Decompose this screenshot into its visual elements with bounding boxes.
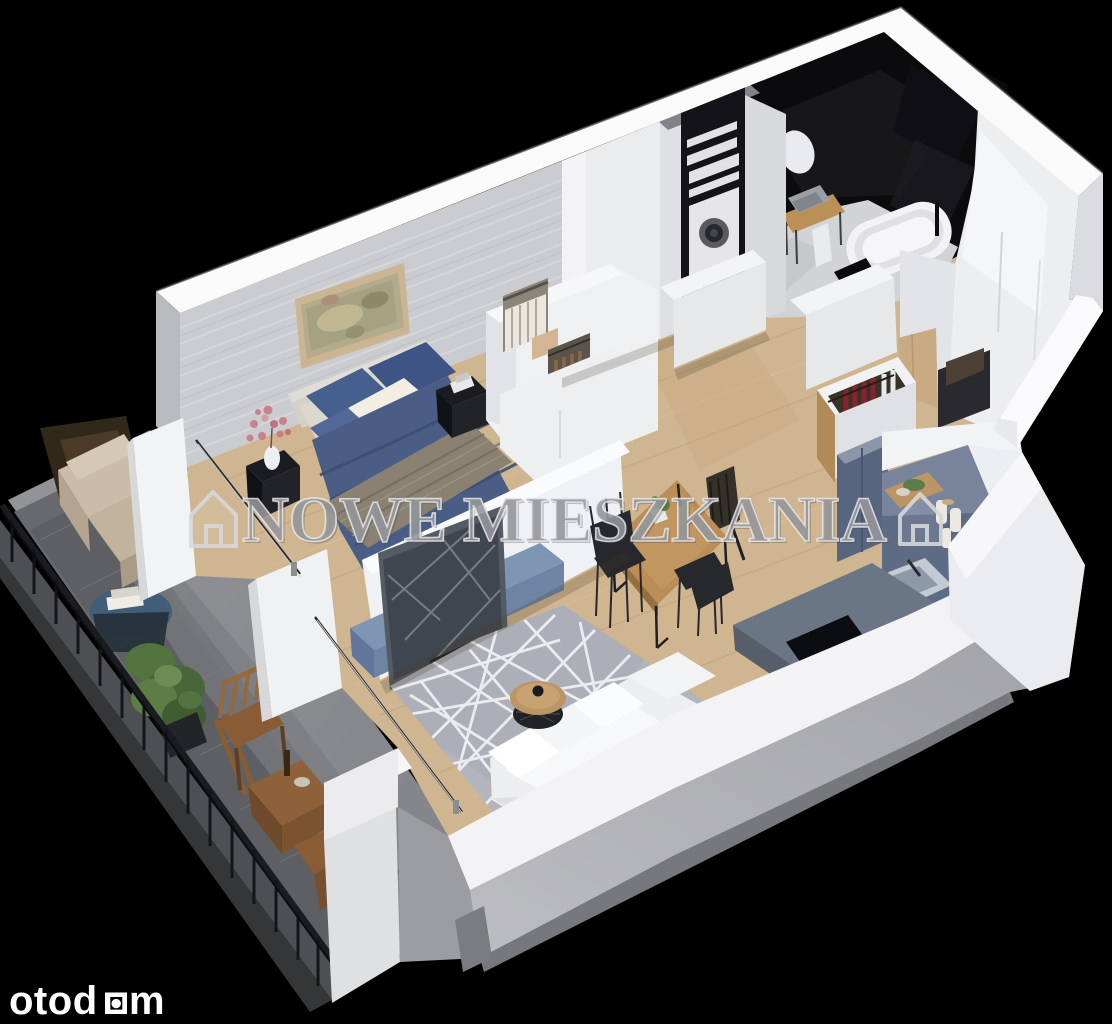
- svg-text:NOWE MIESZKANIA: NOWE MIESZKANIA: [242, 484, 888, 556]
- svg-text:otod: otod: [9, 979, 98, 1023]
- svg-text:m: m: [129, 979, 165, 1023]
